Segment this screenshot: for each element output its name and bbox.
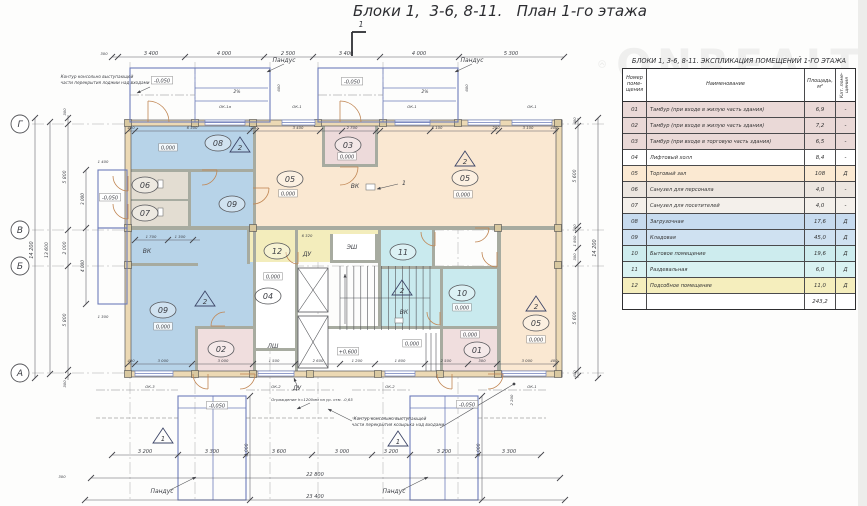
annotation-text: Контур консольно выступающей <box>61 74 134 79</box>
row-category: Д <box>836 278 855 294</box>
row-name: Подсобное помещение <box>647 278 805 294</box>
svg-text:09: 09 <box>227 200 237 209</box>
row-name: Раздевальная <box>647 262 805 278</box>
plan-text: ОК-1 <box>527 104 536 109</box>
dim-label: 3 200 <box>384 449 398 455</box>
dim-label: 3 000 <box>335 449 349 455</box>
grid-letter: Б <box>17 262 23 272</box>
plan-text: Пандус <box>382 488 406 495</box>
dim-label: 5 300 <box>504 51 518 57</box>
row-number: 03 <box>623 134 647 150</box>
door <box>482 252 497 267</box>
outline-structure <box>178 396 246 500</box>
dim-label: 3 100 <box>523 125 534 130</box>
plan-text: ВК <box>351 183 360 190</box>
plan-text: ОК-2 <box>385 384 395 389</box>
plan-text: 2 200 <box>509 394 514 405</box>
explication-title: БЛОКИ 1, 3-6, 8-11. ЭКСПЛИКАЦИЯ ПОМЕЩЕНИ… <box>618 57 860 65</box>
plumbing-fixture <box>366 184 375 190</box>
dim-label: 400 <box>572 370 577 378</box>
row-number: 07 <box>623 198 647 214</box>
row-name: Санузел для персонала <box>647 182 805 198</box>
row-number: 09 <box>623 230 647 246</box>
plan-text: ОК-1 <box>527 384 536 389</box>
door <box>148 101 169 122</box>
dimension-chain <box>82 497 568 503</box>
svg-text:01: 01 <box>472 346 482 355</box>
dim-label: 200 <box>572 224 577 232</box>
svg-text:0,000: 0,000 <box>456 193 470 199</box>
dimension-chain <box>83 167 89 307</box>
svg-text:12: 12 <box>272 247 282 256</box>
row-number: 10 <box>623 246 647 262</box>
svg-text:1: 1 <box>161 435 165 443</box>
row-category: - <box>836 150 855 166</box>
dim-label: 4 000 <box>476 443 482 456</box>
svg-text:05: 05 <box>285 175 295 184</box>
dimension-chain <box>88 475 563 481</box>
row-number: 02 <box>623 118 647 134</box>
dim-label: 1 500 <box>269 358 280 363</box>
col-header-area: Площадь, м² <box>805 69 836 102</box>
svg-text:1: 1 <box>396 438 400 446</box>
col-header-name: Наименование <box>647 69 805 102</box>
plan-text: ВК <box>400 309 409 316</box>
room-05-right <box>497 228 559 373</box>
dim-label: 3 200 <box>138 449 152 455</box>
dim-label: 3 200 <box>437 449 451 455</box>
svg-text:2: 2 <box>534 303 539 311</box>
plan-text: 1 400 <box>98 159 109 164</box>
dim-label: 1 800 <box>572 235 577 246</box>
dim-label: 400 <box>127 125 135 130</box>
row-number: 12 <box>623 278 647 294</box>
dim-label: 3 400 <box>144 51 158 57</box>
svg-text:2: 2 <box>203 298 208 306</box>
row-name: Бытовое помещение <box>647 246 805 262</box>
svg-text:0,000: 0,000 <box>455 306 469 312</box>
svg-text:-0,050: -0,050 <box>154 79 170 85</box>
grid-letter: В <box>17 226 23 236</box>
room-08 <box>128 126 253 172</box>
dim-label: 13 600 <box>44 242 50 258</box>
row-category: - <box>836 198 855 214</box>
plan-text: ОК-1 <box>292 104 301 109</box>
svg-text:2: 2 <box>400 287 405 295</box>
total-cat <box>836 294 855 309</box>
dim-label: 200 <box>492 125 500 130</box>
row-area: 6,5 <box>805 134 836 150</box>
dim-label: 300 <box>100 51 108 56</box>
plan-text: ОК-2 <box>271 384 281 389</box>
dim-label: 3 000 <box>218 358 229 363</box>
svg-text:06: 06 <box>140 181 150 190</box>
row-area: 6,0 <box>805 262 836 278</box>
row-area: 4,0 <box>805 182 836 198</box>
dim-label: 1 300 <box>175 234 186 239</box>
page-edge-strip <box>858 0 867 506</box>
dim-label: 400 <box>572 117 577 125</box>
dim-label: 22 800 <box>306 472 324 478</box>
svg-text:0,000: 0,000 <box>281 192 295 198</box>
annotation-text: части перекрытия лоджии над входами <box>61 80 150 85</box>
row-number: 06 <box>623 182 647 198</box>
svg-text:2: 2 <box>238 144 243 152</box>
row-category: Д <box>836 246 855 262</box>
plumbing-fixture <box>158 180 163 188</box>
plan-text: 600 <box>276 84 281 92</box>
row-name: Загрузочная <box>647 214 805 230</box>
dim-label: 5 600 <box>572 311 578 324</box>
dimension-chain <box>575 117 581 379</box>
svg-text:-0,050: -0,050 <box>209 404 225 410</box>
plan-text: 6 320 <box>302 233 313 238</box>
row-name: Тамбур (при входе в торговую часть здани… <box>647 134 805 150</box>
grid-letter: А <box>16 369 23 379</box>
dim-label: 3 000 <box>80 193 85 205</box>
dim-label: 4 000 <box>412 51 426 57</box>
row-name: Лифтовый холл <box>647 150 805 166</box>
svg-text:03: 03 <box>343 141 353 150</box>
total-label <box>647 294 805 309</box>
total-empty <box>623 294 647 309</box>
dim-label: 2 000 <box>62 241 68 254</box>
plan-text: ЭШ <box>346 244 358 251</box>
dim-label: 3 000 <box>522 358 533 363</box>
dim-label: 3 300 <box>205 449 219 455</box>
plan-text: 600 <box>464 84 469 92</box>
svg-text:10: 10 <box>457 289 467 298</box>
row-area: 7,2 <box>805 118 836 134</box>
row-name: Санузел для посетителей <box>647 198 805 214</box>
plan-text: Пандус <box>150 488 174 495</box>
svg-text:2: 2 <box>463 158 468 166</box>
dim-label: 6 100 <box>432 125 443 130</box>
svg-text:-0,050: -0,050 <box>459 403 475 409</box>
dim-label: 14 200 <box>592 239 598 257</box>
row-category: - <box>836 102 855 118</box>
svg-text:02: 02 <box>216 345 226 354</box>
plan-text: ДУ <box>292 385 302 392</box>
dim-label: 4 000 <box>80 260 85 272</box>
row-area: 4,0 <box>805 198 836 214</box>
svg-text:04: 04 <box>263 292 273 301</box>
dim-label: 2 600 <box>313 358 324 363</box>
svg-text:08: 08 <box>213 139 223 148</box>
row-number: 05 <box>623 166 647 182</box>
plan-text: ВК <box>143 248 152 255</box>
dim-label: 3 400 <box>293 125 304 130</box>
svg-text:0,000: 0,000 <box>266 275 280 281</box>
plan-text: ЛШ <box>267 343 280 350</box>
dim-label: 300 <box>572 253 577 261</box>
row-area: 45,0 <box>805 230 836 246</box>
row-category: - <box>836 118 855 134</box>
plan-text: Пандус <box>272 57 296 64</box>
row-category: - <box>836 134 855 150</box>
row-category: Д <box>836 214 855 230</box>
svg-text:+0,600: +0,600 <box>339 350 358 356</box>
row-area: 19,6 <box>805 246 836 262</box>
dim-label: 5 600 <box>572 169 578 182</box>
row-number: 11 <box>623 262 647 278</box>
dim-label: 400 <box>127 358 135 363</box>
col-header-category: Кат. поме-щения <box>836 69 855 102</box>
plan-text: 1 <box>358 20 363 29</box>
dim-label: 3 300 <box>502 449 516 455</box>
svg-text:11: 11 <box>398 248 408 257</box>
annotation-text: Контур консольно выступающей <box>354 416 427 421</box>
dim-label: 300 <box>62 380 67 388</box>
svg-text:0,000: 0,000 <box>529 338 543 344</box>
svg-text:0,000: 0,000 <box>156 325 170 331</box>
row-name: Тамбур (при входе в жилую часть здания) <box>647 102 805 118</box>
dim-label: 1 800 <box>395 358 406 363</box>
row-category: Д <box>836 166 855 182</box>
row-area: 17,6 <box>805 214 836 230</box>
floor-plan: ГВБА3003 4004 0002 5003 4004 0005 300400… <box>0 0 620 506</box>
dim-label: 1 700 <box>146 234 157 239</box>
col-header-number: Номер поме- щения <box>623 69 647 102</box>
row-name: Торговый зал <box>647 166 805 182</box>
svg-text:05: 05 <box>460 174 470 183</box>
row-category: Д <box>836 262 855 278</box>
dim-label: 3 400 <box>339 51 353 57</box>
dim-label: 5 800 <box>62 170 68 183</box>
plan-text: ДУ <box>302 251 312 258</box>
row-number: 08 <box>623 214 647 230</box>
dim-label: 200 <box>250 125 258 130</box>
dim-label: 3 000 <box>158 358 169 363</box>
plumbing-fixture <box>395 318 403 323</box>
svg-text:05: 05 <box>531 319 541 328</box>
total-area: 243,2 <box>805 294 836 309</box>
row-name: Кладовая <box>647 230 805 246</box>
dim-label: 2 500 <box>441 358 452 363</box>
plan-text: 1 <box>402 179 406 187</box>
plan-text: 1 300 <box>98 314 109 319</box>
svg-text:0,000: 0,000 <box>463 333 477 339</box>
dim-label: 400 <box>550 125 558 130</box>
svg-text:0,000: 0,000 <box>161 146 175 152</box>
svg-text:-0,050: -0,050 <box>344 80 360 86</box>
row-area: 108 <box>805 166 836 182</box>
dim-label: 4 000 <box>244 443 250 456</box>
dim-label: 5 800 <box>62 313 68 326</box>
plan-text: Ограждение h=1200мм на ур. отм. -0,65 <box>271 397 353 402</box>
row-area: 6,9 <box>805 102 836 118</box>
dim-label: 300 <box>62 108 67 116</box>
dim-label: 23 400 <box>306 494 324 500</box>
svg-text:07: 07 <box>140 209 151 218</box>
dim-label: 4 000 <box>217 51 231 57</box>
row-number: 04 <box>623 150 647 166</box>
plan-text: 300 <box>58 474 66 479</box>
plan-text: ОК-1 <box>407 104 416 109</box>
row-category: Д <box>836 230 855 246</box>
dim-label: 2 700 <box>347 125 358 130</box>
plumbing-fixture <box>158 208 163 216</box>
plan-text: ОК-3 <box>145 384 155 389</box>
dim-label: 6 300 <box>187 125 198 130</box>
plan-text: Пандус <box>460 57 484 64</box>
row-area: 8,4 <box>805 150 836 166</box>
plan-text: 2% <box>233 89 240 95</box>
svg-text:-0,050: -0,050 <box>102 196 118 202</box>
annotation-text: части перекрытия козырька над входами <box>352 422 445 427</box>
explication-table: Номер поме- щенияНаименованиеПлощадь, м²… <box>622 68 856 310</box>
row-name: Тамбур (при входе в жилую часть здания) <box>647 118 805 134</box>
dim-label: 14 200 <box>29 241 35 259</box>
dim-label: 1 200 <box>352 358 363 363</box>
dim-label: 3 600 <box>272 449 286 455</box>
door <box>340 101 361 122</box>
dim-label: 400 <box>550 358 558 363</box>
row-number: 01 <box>623 102 647 118</box>
drawing-page: Блоки 1, 3-6, 8-11. План 1-го этажа ONRE… <box>0 0 867 506</box>
plan-text: ОК-1а <box>219 104 231 109</box>
dim-label: 300 <box>478 358 486 363</box>
row-area: 11,0 <box>805 278 836 294</box>
plan-text: 2% <box>421 89 428 95</box>
svg-text:0,000: 0,000 <box>405 342 419 348</box>
svg-text:0,000: 0,000 <box>340 155 354 161</box>
row-category: - <box>836 182 855 198</box>
svg-text:09: 09 <box>158 306 168 315</box>
